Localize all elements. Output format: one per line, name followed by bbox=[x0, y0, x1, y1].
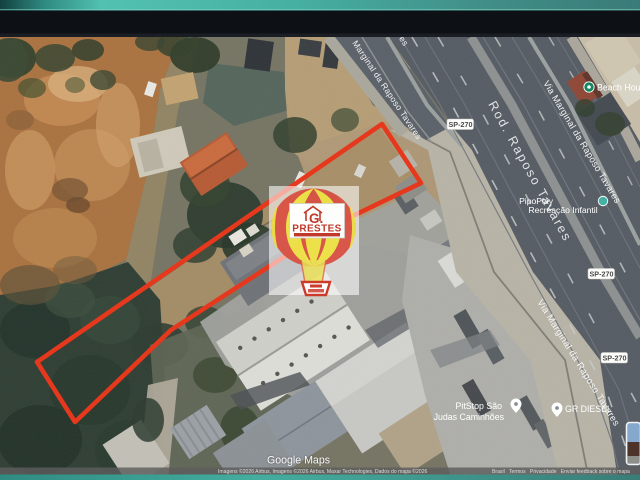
svg-text:SP-270: SP-270 bbox=[603, 354, 627, 363]
svg-text:Imagens ©2026 Airbus, Imagens: Imagens ©2026 Airbus, Imagens ©2026 Airb… bbox=[218, 468, 428, 475]
svg-text:GR DIESEL: GR DIESEL bbox=[565, 404, 612, 414]
svg-text:PitStop São: PitStop São bbox=[456, 401, 503, 411]
svg-text:Google Maps: Google Maps bbox=[267, 455, 330, 467]
svg-text:Beach Hou: Beach Hou bbox=[597, 83, 640, 93]
svg-text:PRESTES: PRESTES bbox=[292, 224, 341, 235]
svg-text:SP-270: SP-270 bbox=[449, 120, 473, 129]
svg-text:Brasil Termos Privacidade: Brasil Termos Privacidade Enviar feedbac… bbox=[492, 469, 630, 475]
svg-text:SP-270: SP-270 bbox=[590, 270, 614, 279]
svg-text:Recreação Infantil: Recreação Infantil bbox=[528, 205, 597, 215]
svg-text:Judas Caminhões: Judas Caminhões bbox=[434, 412, 505, 422]
